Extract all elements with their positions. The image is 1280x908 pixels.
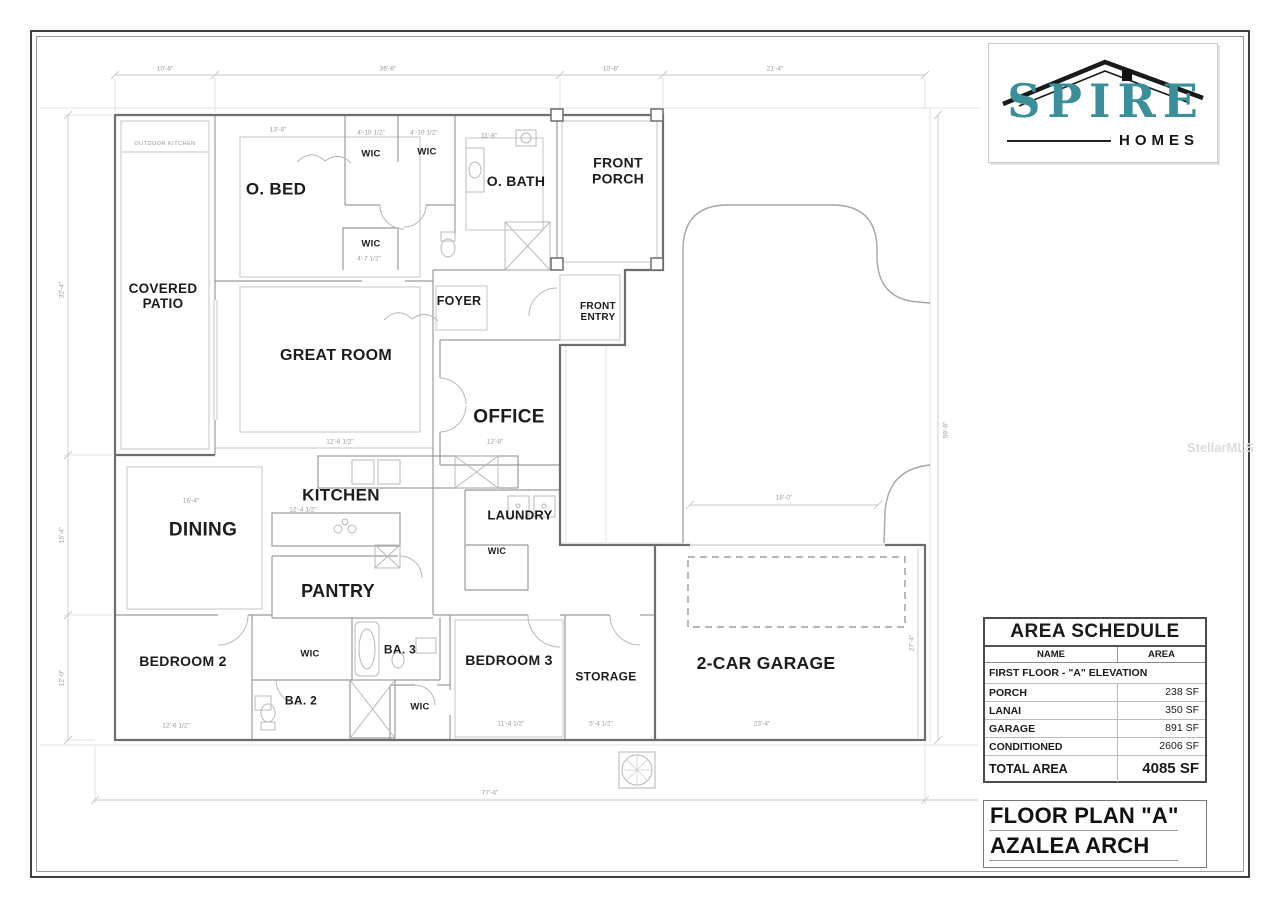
- dim-wic-b: 4'-10 1/2": [410, 130, 437, 137]
- room-label-wic-bed2: WIC: [300, 650, 319, 661]
- area-schedule-header: NAME AREA: [985, 647, 1205, 663]
- dim-right-1: 59'-8": [943, 422, 950, 439]
- room-label-garage: 2-CAR GARAGE: [697, 654, 836, 674]
- dim-bottom-total: 77'-4": [482, 790, 499, 797]
- table-row: LANAI 350 SF: [985, 702, 1205, 720]
- area-schedule-group-header: FIRST FLOOR - "A" ELEVATION: [985, 663, 1205, 684]
- room-label-wic-laundry: WIC: [488, 546, 506, 556]
- plan-subtitle: AZALEA ARCH: [984, 831, 1206, 859]
- room-label-bedroom-2: BEDROOM 2: [139, 654, 227, 670]
- room-label-front-porch: FRONT PORCH: [592, 155, 644, 186]
- room-label-foyer: FOYER: [437, 294, 482, 308]
- room-label-wic-1: WIC: [361, 150, 380, 161]
- dim-storage-width: 5'-4 1/2": [589, 721, 613, 728]
- row-name: CONDITIONED: [985, 741, 1117, 753]
- room-label-o-bath: O. BATH: [487, 174, 546, 190]
- dim-bed3-width: 11'-4 1/2": [498, 721, 525, 728]
- room-label-laundry: LAUNDRY: [487, 509, 552, 524]
- brand-name: SPIRE: [989, 74, 1217, 128]
- room-label-bedroom-3: BEDROOM 3: [465, 653, 553, 669]
- room-label-ba-3: BA. 3: [384, 643, 416, 656]
- table-total-row: TOTAL AREA 4085 SF: [985, 756, 1205, 782]
- row-name: LANAI: [985, 705, 1117, 717]
- total-name: TOTAL AREA: [985, 762, 1117, 776]
- dim-bed2-width: 12'-6 1/2": [162, 723, 189, 730]
- room-label-covered-patio: COVERED PATIO: [129, 281, 198, 311]
- total-area: 4085 SF: [1117, 756, 1205, 782]
- floor-plan-sheet: OUTDOOR KITCHEN COVERED PATIO O. BED WIC…: [0, 0, 1280, 908]
- col-header-area: AREA: [1117, 647, 1205, 662]
- room-label-office: OFFICE: [473, 406, 544, 427]
- area-schedule-title: AREA SCHEDULE: [985, 619, 1205, 647]
- room-label-dining: DINING: [169, 519, 237, 540]
- dim-left-2: 15'-4": [59, 527, 66, 544]
- dim-office-width: 12'-8": [487, 439, 504, 446]
- dim-garage-width: 23'-4": [754, 721, 771, 728]
- col-header-name: NAME: [985, 649, 1117, 660]
- room-label-wic-3: WIC: [361, 240, 380, 251]
- room-label-great-room: GREAT ROOM: [280, 347, 392, 365]
- title-rule-2: [989, 860, 1178, 861]
- dim-great-width: 12'-8 1/2": [326, 439, 353, 446]
- dim-kitchen-width: 12'-4 1/2": [289, 507, 316, 514]
- watermark: StellarMLS: [1150, 440, 1254, 455]
- room-label-wic-bed3: WIC: [410, 703, 429, 714]
- room-label-wic-2: WIC: [417, 148, 436, 159]
- room-label-front-entry: FRONT ENTRY: [580, 301, 616, 323]
- brand-logo: SPIRE HOMES: [988, 43, 1218, 163]
- dim-right-2: 27'-4": [909, 635, 916, 652]
- room-label-o-bed: O. BED: [246, 179, 306, 198]
- room-label-kitchen: KITCHEN: [302, 485, 380, 504]
- dim-wic-c: 4'-7 1/2": [357, 256, 381, 263]
- row-area: 891 SF: [1117, 720, 1205, 737]
- table-row: PORCH 238 SF: [985, 684, 1205, 702]
- dim-obed-width: 13'-8": [270, 127, 287, 134]
- row-name: GARAGE: [985, 723, 1117, 735]
- table-row: CONDITIONED 2606 SF: [985, 738, 1205, 756]
- row-area: 2606 SF: [1117, 738, 1205, 755]
- dim-top-4: 21'-4": [767, 66, 784, 73]
- dim-left-3: 12'-0": [59, 670, 66, 687]
- room-label-ba-2: BA. 2: [285, 694, 317, 707]
- dim-top-1: 10'-8": [157, 66, 174, 73]
- plan-title: FLOOR PLAN "A": [984, 801, 1206, 829]
- dim-left-1: 32'-4": [59, 282, 66, 299]
- room-label-outdoor-kitchen: OUTDOOR KITCHEN: [134, 141, 195, 147]
- dim-top-3: 10'-8": [603, 66, 620, 73]
- dim-obath-width: 11'-8": [481, 133, 497, 140]
- dim-top-2: 36'-8": [380, 66, 397, 73]
- row-name: PORCH: [985, 687, 1117, 699]
- brand-rule: [1007, 140, 1111, 142]
- room-label-pantry: PANTRY: [301, 581, 375, 601]
- dim-garage-door: 18'-0": [776, 495, 793, 502]
- row-area: 238 SF: [1117, 684, 1205, 701]
- dim-wic-a: 4'-10 1/2": [357, 130, 384, 137]
- area-schedule-table: AREA SCHEDULE NAME AREA FIRST FLOOR - "A…: [983, 617, 1207, 783]
- title-block: FLOOR PLAN "A" AZALEA ARCH: [983, 800, 1207, 868]
- room-label-storage: STORAGE: [575, 670, 636, 683]
- brand-sub: HOMES: [1119, 132, 1199, 149]
- row-area: 350 SF: [1117, 702, 1205, 719]
- table-row: GARAGE 891 SF: [985, 720, 1205, 738]
- dim-dining-width: 16'-4": [183, 498, 200, 505]
